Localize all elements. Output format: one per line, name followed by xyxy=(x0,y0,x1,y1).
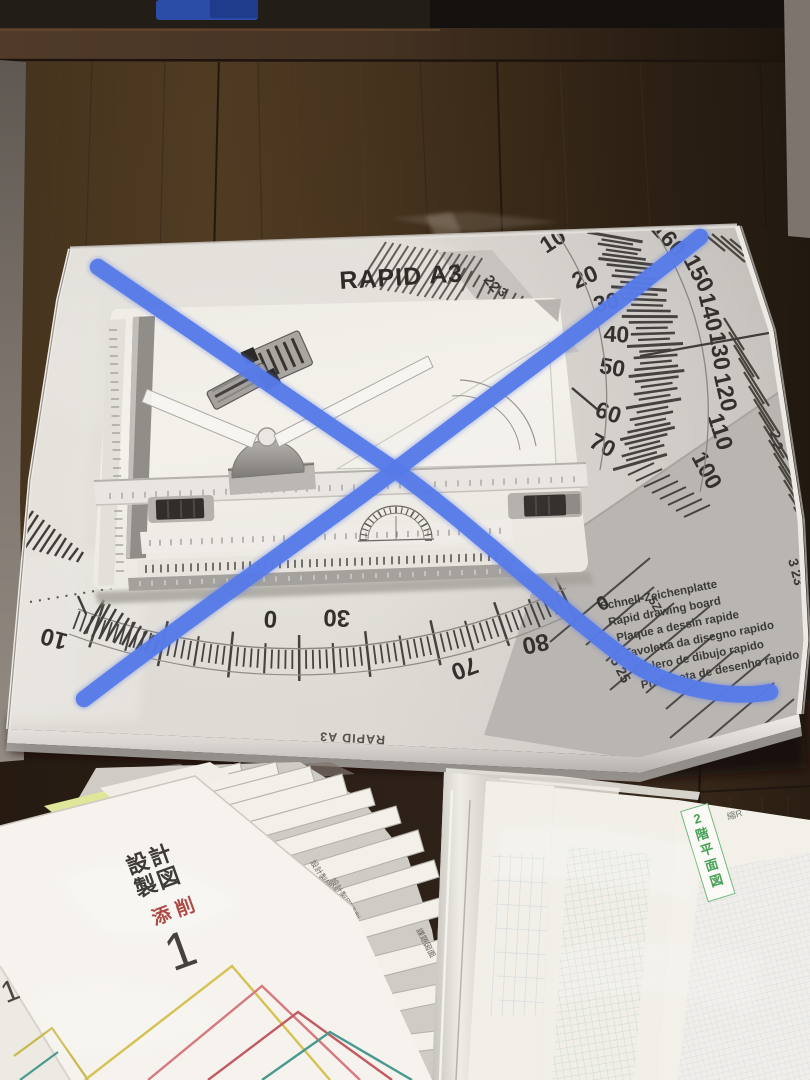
svg-text:0: 0 xyxy=(263,605,278,633)
svg-text:50: 50 xyxy=(598,352,628,382)
svg-text:40: 40 xyxy=(603,320,630,347)
svg-text:30: 30 xyxy=(323,604,351,632)
svg-text:80: 80 xyxy=(520,627,552,659)
